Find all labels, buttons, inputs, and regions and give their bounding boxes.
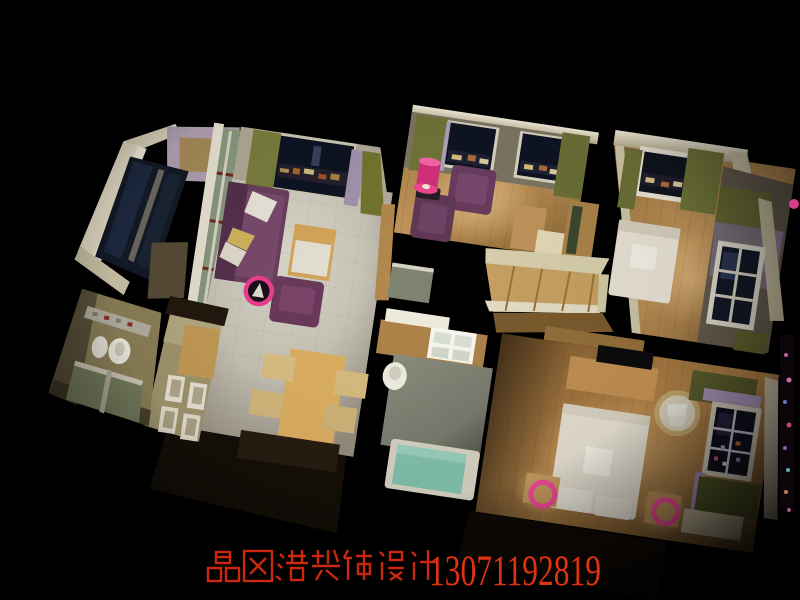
svg-text:13071192819: 13071192819 bbox=[429, 548, 601, 595]
